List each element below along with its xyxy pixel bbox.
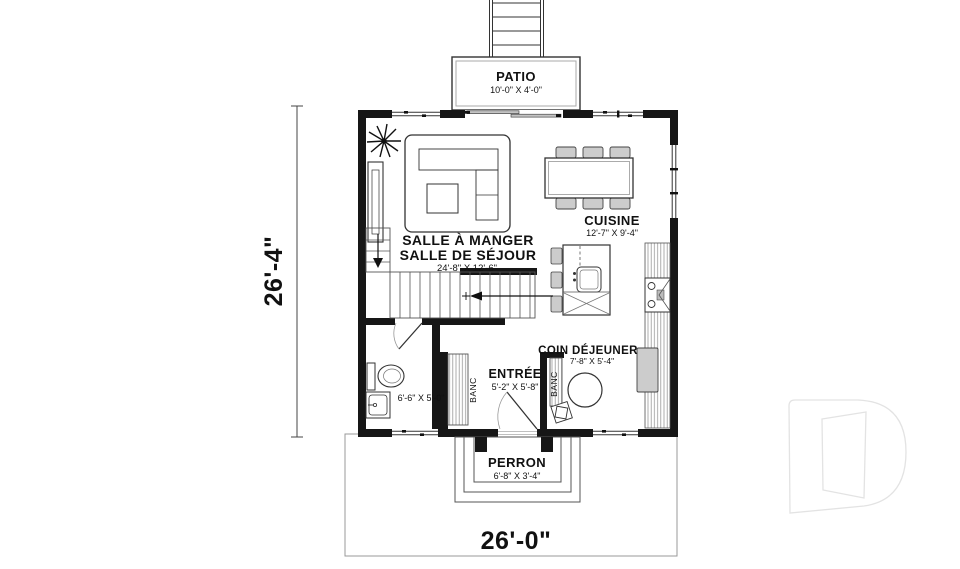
refrigerator xyxy=(637,348,658,392)
kitchen-label: CUISINE xyxy=(584,213,640,228)
dimension-line-left xyxy=(291,106,303,437)
porch-label: PERRON xyxy=(488,455,546,470)
kitchen-counter xyxy=(637,243,670,428)
bench-left-label: BANC xyxy=(468,377,478,403)
builder-d-logo-watermark xyxy=(789,400,906,513)
breakfast-dims: 7'-8" X 5'-4" xyxy=(570,356,614,366)
floor-plan-drawing: 26'-4" 26'-0" PATIO 10'-0" X 4'-0" xyxy=(0,0,960,569)
media-console xyxy=(368,162,383,242)
entry-dims: 5'-2" X 5'-8" xyxy=(492,382,539,392)
window-top-right xyxy=(593,110,643,118)
window-kitchen-right xyxy=(670,145,678,218)
front-door xyxy=(498,392,537,429)
window-bottom-left xyxy=(392,429,438,437)
bathroom-door xyxy=(394,323,422,349)
round-table xyxy=(568,373,602,407)
window-top-left xyxy=(392,110,440,118)
living-label-line2: SALLE DE SÉJOUR xyxy=(400,247,537,263)
sectional-sofa xyxy=(405,135,510,232)
porch-dims: 6'-8" X 3'-4" xyxy=(494,471,541,481)
patio-deck: PATIO 10'-0" X 4'-0" xyxy=(452,57,580,110)
bench-left xyxy=(448,354,468,425)
front-door-opening xyxy=(498,429,537,437)
dimension-depth-label: 26'-4" xyxy=(260,236,288,307)
bench-right-label: BANC xyxy=(549,371,559,397)
bathroom-sink xyxy=(366,392,390,418)
bathroom-dims: 6'-6" X 5'-0" xyxy=(398,393,445,403)
dimension-width-label: 26'-0" xyxy=(481,527,552,555)
exterior-stairs xyxy=(490,0,544,58)
patio-dims: 10'-0" X 4'-0" xyxy=(490,85,542,95)
living-label-line1: SALLE À MANGER xyxy=(402,232,534,248)
patio-label: PATIO xyxy=(496,69,536,84)
potted-plant xyxy=(367,124,401,157)
kitchen-island xyxy=(551,245,610,315)
window-bottom-right xyxy=(593,429,638,437)
kitchen-dims: 12'-7" X 9'-4" xyxy=(586,228,638,238)
floor-plan-canvas: 26'-4" 26'-0" PATIO 10'-0" X 4'-0" xyxy=(0,0,960,569)
entry-label: ENTRÉE xyxy=(488,366,541,381)
porch: PERRON 6'-8" X 3'-4" xyxy=(455,437,580,502)
patio-sliding-door xyxy=(465,110,563,118)
toilet xyxy=(367,363,404,390)
dining-table xyxy=(545,147,633,209)
